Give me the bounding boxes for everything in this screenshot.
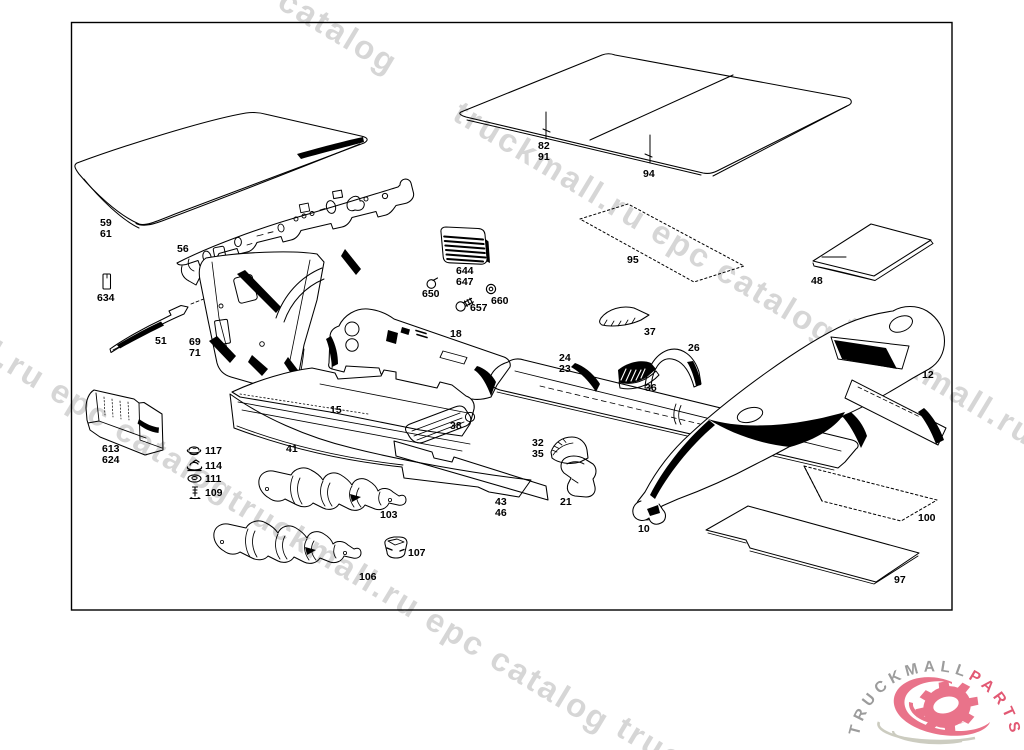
svg-text:41: 41 xyxy=(286,443,298,455)
svg-text:94: 94 xyxy=(643,168,655,180)
svg-text:97: 97 xyxy=(894,574,906,586)
svg-text:18: 18 xyxy=(450,328,462,340)
svg-text:15: 15 xyxy=(330,404,342,416)
svg-text:12: 12 xyxy=(922,369,934,381)
svg-text:117: 117 xyxy=(205,445,222,457)
svg-text:657: 657 xyxy=(470,302,488,314)
svg-text:48: 48 xyxy=(811,275,823,287)
svg-text:647: 647 xyxy=(456,276,474,288)
svg-text:26: 26 xyxy=(688,342,700,354)
svg-text:91: 91 xyxy=(538,151,550,163)
svg-text:46: 46 xyxy=(495,507,507,519)
svg-text:35: 35 xyxy=(532,448,544,460)
svg-text:37: 37 xyxy=(644,326,656,338)
svg-text:624: 624 xyxy=(102,454,120,466)
svg-text:36: 36 xyxy=(645,382,657,394)
svg-text:10: 10 xyxy=(638,523,650,535)
svg-text:100: 100 xyxy=(918,512,936,524)
svg-text:38: 38 xyxy=(450,420,462,432)
svg-text:61: 61 xyxy=(100,228,112,240)
svg-text:107: 107 xyxy=(408,547,426,559)
svg-text:21: 21 xyxy=(560,496,572,508)
svg-text:650: 650 xyxy=(422,288,440,300)
svg-text:23: 23 xyxy=(559,363,571,375)
svg-text:111: 111 xyxy=(205,473,222,485)
svg-text:95: 95 xyxy=(627,254,639,266)
svg-text:71: 71 xyxy=(189,347,201,359)
svg-text:660: 660 xyxy=(491,295,509,307)
svg-text:106: 106 xyxy=(359,571,377,583)
svg-text:56: 56 xyxy=(177,243,189,255)
svg-text:109: 109 xyxy=(205,487,223,499)
svg-text:114: 114 xyxy=(205,460,222,472)
svg-text:634: 634 xyxy=(97,292,115,304)
svg-text:103: 103 xyxy=(380,509,398,521)
svg-text:51: 51 xyxy=(155,335,167,347)
